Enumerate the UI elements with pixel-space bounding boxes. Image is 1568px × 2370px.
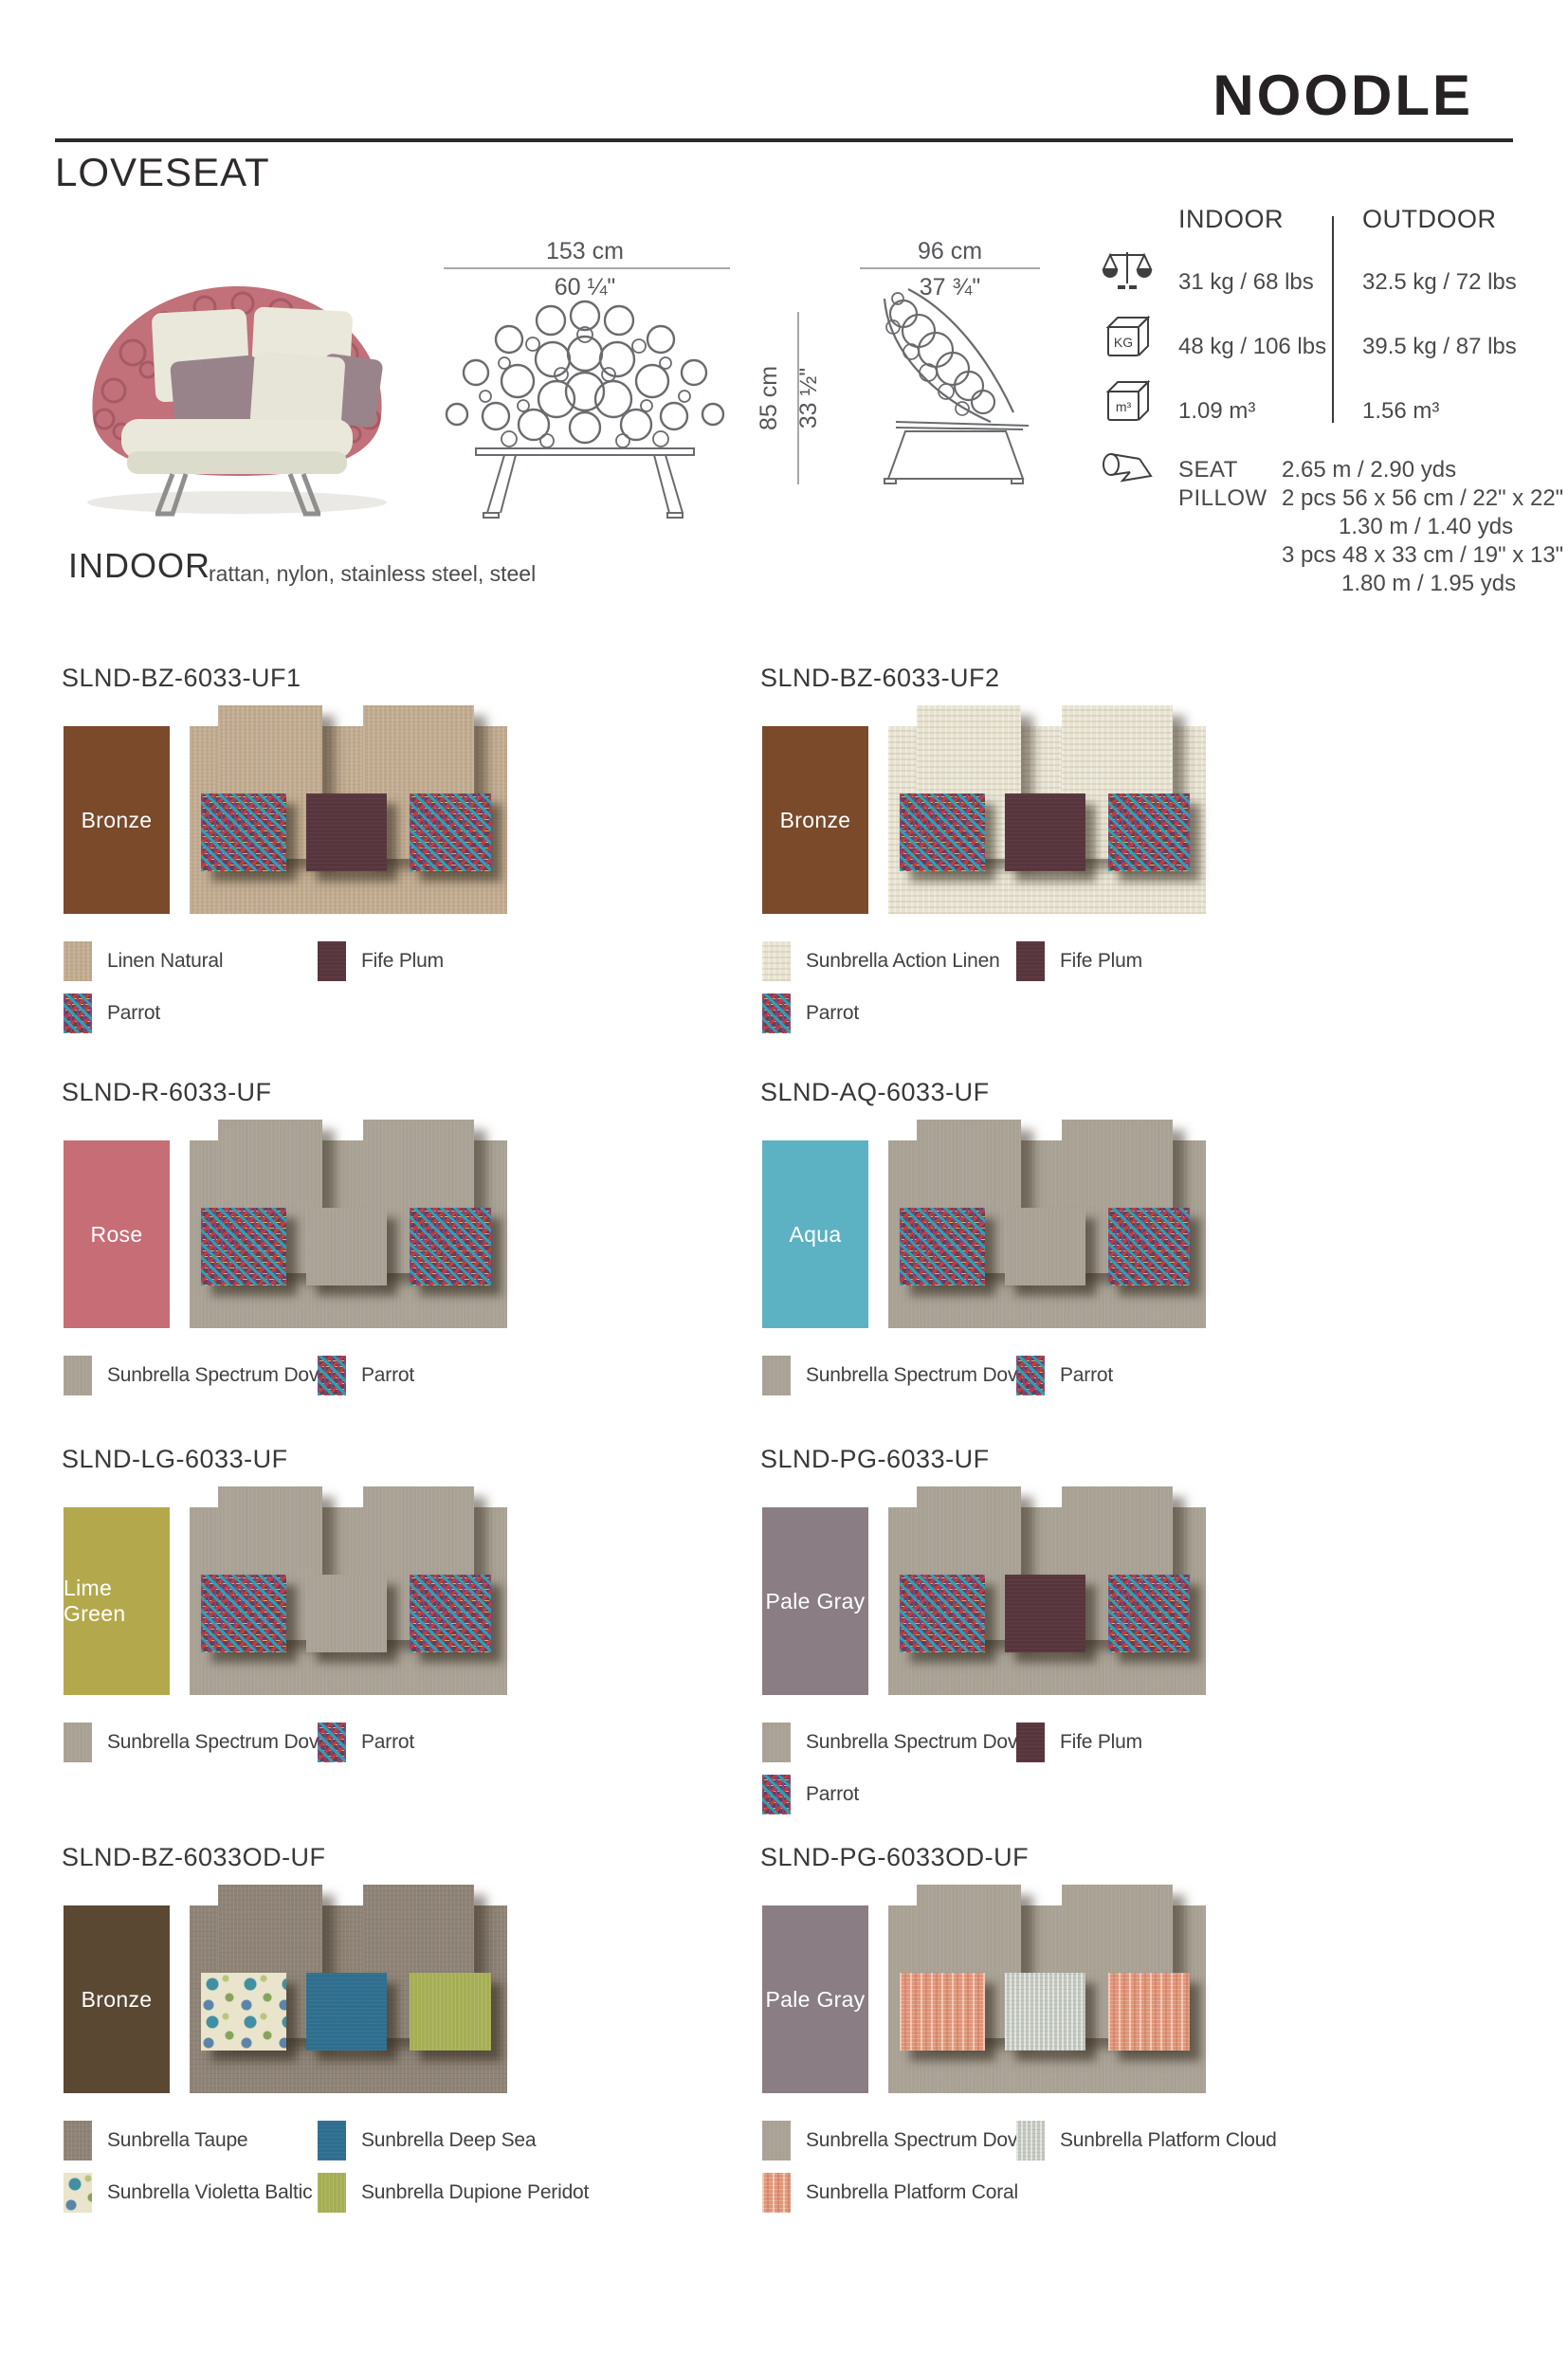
fabric-label: Sunbrella Platform Cloud (1060, 2129, 1277, 2152)
width-in-label: 60 ¼" (555, 274, 615, 301)
pillow-swatch (900, 793, 985, 871)
legend-item: Parrot (318, 1723, 414, 1762)
fabric-roll-icon (1098, 449, 1155, 491)
frame-color-name: Lime Green (64, 1576, 170, 1627)
carton-weight-indoor: 48 kg / 106 lbs (1178, 334, 1326, 360)
width-cm-label: 153 cm (546, 238, 624, 264)
frame-color-swatch: Pale Gray (762, 1507, 868, 1695)
spec-column-divider (1332, 216, 1334, 423)
frame-color-name: Aqua (790, 1222, 842, 1248)
frame-color-name: Bronze (82, 1987, 153, 2013)
variant-sku: SLND-AQ-6033-UF (760, 1078, 990, 1107)
fabric-label: Parrot (806, 1783, 859, 1806)
frame-color-name: Rose (91, 1222, 143, 1248)
pillow-swatch (1005, 793, 1085, 871)
fabric-swatch (64, 2173, 92, 2213)
front-dimension-drawing: 153 cm 60 ¼" (417, 230, 744, 526)
legend-item: Sunbrella Spectrum Dove (64, 1356, 330, 1395)
frame-color-name: Bronze (82, 808, 153, 833)
fabric-label: Fife Plum (1060, 950, 1142, 973)
frame-color-swatch: Bronze (64, 726, 170, 914)
volume-outdoor: 1.56 m³ (1362, 398, 1439, 425)
fabric-collage (190, 1507, 507, 1695)
pillow-swatch (306, 793, 387, 871)
variant-sku: SLND-PG-6033OD-UF (760, 1843, 1029, 1872)
legend-item: Sunbrella Dupione Peridot (318, 2173, 589, 2213)
fabric-swatch (64, 2121, 92, 2160)
variant-sku: SLND-BZ-6033-UF1 (62, 664, 301, 693)
pillow-swatch (1108, 1973, 1190, 2051)
product-type-title: LOVESEAT (55, 150, 270, 195)
svg-text:m³: m³ (1116, 399, 1132, 414)
fabric-swatch (1016, 1723, 1045, 1762)
fabric-collage (888, 726, 1206, 914)
depth-in-label: 37 ¾" (920, 274, 980, 301)
fabric-swatch (762, 1723, 791, 1762)
fabric-label: Sunbrella Platform Coral (806, 2181, 1018, 2204)
fabric-label: Sunbrella Spectrum Dove (806, 1364, 1029, 1387)
kg-cube-icon: KG (1105, 315, 1153, 360)
product-variant: SLND-AQ-6033-UF Aqua Sunbrella Spectrum … (760, 1078, 1462, 1476)
legend-item: Sunbrella Taupe (64, 2121, 247, 2160)
fabric-label: Sunbrella Spectrum Dove (107, 1731, 330, 1754)
product-variant: SLND-R-6033-UF Rose Sunbrella Spectrum D… (62, 1078, 763, 1476)
fabric-collage (888, 1507, 1206, 1695)
title-rule (55, 138, 1513, 142)
legend-item: Parrot (762, 1775, 859, 1814)
legend-item: Fife Plum (1016, 941, 1142, 981)
pillow-swatch (1108, 1208, 1190, 1285)
pillow-swatch (410, 1973, 491, 2051)
fabric-swatch (318, 1723, 346, 1762)
variant-sku: SLND-R-6033-UF (62, 1078, 272, 1107)
weight-indoor: 31 kg / 68 lbs (1178, 269, 1314, 296)
legend-item: Fife Plum (318, 941, 444, 981)
legend-item: Fife Plum (1016, 1723, 1142, 1762)
pillow-swatch (900, 1208, 985, 1285)
fabric-swatch (318, 1356, 346, 1395)
category-label: INDOOR (68, 546, 210, 586)
frame-color-name: Pale Gray (766, 1589, 866, 1614)
fabric-label: Sunbrella Deep Sea (361, 2129, 536, 2152)
legend-item: Sunbrella Spectrum Dove (762, 1356, 1029, 1395)
fabric-label: Fife Plum (361, 950, 444, 973)
fabric-label: Parrot (806, 1002, 859, 1025)
pillow-yardage-line4: 1.80 m / 1.95 yds (1341, 571, 1516, 597)
materials-list: rattan, nylon, stainless steel, steel (209, 561, 536, 587)
variant-sku: SLND-BZ-6033-UF2 (760, 664, 1000, 693)
pillow-swatch (306, 1973, 387, 2051)
product-variant: SLND-BZ-6033OD-UF Bronze Sunbrella Taupe… (62, 1843, 763, 2241)
frame-color-swatch: Aqua (762, 1140, 868, 1328)
product-photo (66, 237, 408, 521)
legend-item: Sunbrella Platform Cloud (1016, 2121, 1277, 2160)
fabric-swatch (318, 941, 346, 981)
pillow-yardage-line1: 2 pcs 56 x 56 cm / 22" x 22" (1282, 485, 1563, 512)
variant-sku: SLND-PG-6033-UF (760, 1445, 990, 1474)
pillow-swatch (306, 1575, 387, 1652)
height-cm-label: 85 cm (756, 366, 782, 430)
fabric-collage (190, 1140, 507, 1328)
frame-color-swatch: Pale Gray (762, 1905, 868, 2093)
pillow-swatch (1005, 1575, 1085, 1652)
product-variant: SLND-BZ-6033-UF1 Bronze Linen Natural Fi… (62, 664, 763, 1062)
product-variant: SLND-BZ-6033-UF2 Bronze Sunbrella Action… (760, 664, 1462, 1062)
fabric-label: Sunbrella Violetta Baltic (107, 2181, 312, 2204)
fabric-label: Parrot (361, 1731, 414, 1754)
fabric-swatch (64, 994, 92, 1033)
fabric-swatch (762, 2121, 791, 2160)
weight-outdoor: 32.5 kg / 72 lbs (1362, 269, 1517, 296)
frame-color-name: Bronze (780, 808, 851, 833)
fabric-label: Parrot (1060, 1364, 1113, 1387)
legend-item: Parrot (1016, 1356, 1113, 1395)
fabric-swatch (64, 1723, 92, 1762)
fabric-label: Sunbrella Action Linen (806, 950, 1000, 973)
legend-item: Sunbrella Spectrum Dove (762, 1723, 1029, 1762)
legend-item: Sunbrella Spectrum Dove (762, 2121, 1029, 2160)
product-variant: SLND-PG-6033OD-UF Pale Gray Sunbrella Sp… (760, 1843, 1462, 2241)
fabric-swatch (762, 941, 791, 981)
fabric-swatch (762, 1775, 791, 1814)
fabric-label: Sunbrella Spectrum Dove (806, 1731, 1029, 1754)
fabric-label: Sunbrella Spectrum Dove (806, 2129, 1029, 2152)
seat-yardage-value: 2.65 m / 2.90 yds (1282, 457, 1456, 483)
fabric-label: Sunbrella Taupe (107, 2129, 247, 2152)
pillow-swatch (201, 1208, 286, 1285)
fabric-swatch (762, 1356, 791, 1395)
fabric-label: Linen Natural (107, 950, 223, 973)
pillow-swatch (900, 1575, 985, 1652)
legend-item: Sunbrella Platform Coral (762, 2173, 1018, 2213)
depth-cm-label: 96 cm (918, 238, 982, 264)
pillow-swatch (410, 793, 491, 871)
fabric-swatch (1016, 1356, 1045, 1395)
fabric-swatch (1016, 2121, 1045, 2160)
legend-item: Parrot (64, 994, 160, 1033)
fabric-swatch (1016, 941, 1045, 981)
variant-sku: SLND-LG-6033-UF (62, 1445, 288, 1474)
pillow-swatch (201, 1575, 286, 1652)
fabric-swatch (64, 941, 92, 981)
fabric-collage (888, 1140, 1206, 1328)
pillow-swatch (1108, 1575, 1190, 1652)
collection-title: NOODLE (1212, 63, 1473, 128)
spec-col-outdoor: OUTDOOR (1362, 205, 1497, 234)
seat-yardage-label: SEAT (1178, 457, 1238, 483)
pillow-swatch (410, 1575, 491, 1652)
svg-text:KG: KG (1114, 335, 1133, 350)
pillow-yardage-label: PILLOW (1178, 485, 1267, 512)
fabric-label: Fife Plum (1060, 1731, 1142, 1754)
variant-sku: SLND-BZ-6033OD-UF (62, 1843, 326, 1872)
pillow-swatch (1005, 1973, 1085, 2051)
fabric-label: Parrot (107, 1002, 160, 1025)
fabric-swatch (762, 2173, 791, 2213)
fabric-swatch (318, 2173, 346, 2213)
product-variant: SLND-LG-6033-UF Lime Green Sunbrella Spe… (62, 1445, 763, 1843)
pillow-yardage-line3: 3 pcs 48 x 33 cm / 19" x 13" (1282, 542, 1563, 569)
fabric-swatch (318, 2121, 346, 2160)
pillow-swatch (201, 1973, 286, 2051)
frame-color-swatch: Rose (64, 1140, 170, 1328)
volume-indoor: 1.09 m³ (1178, 398, 1255, 425)
fabric-swatch (762, 994, 791, 1033)
legend-item: Parrot (318, 1356, 414, 1395)
scale-icon (1102, 248, 1153, 292)
pillow-yardage-line2: 1.30 m / 1.40 yds (1339, 514, 1513, 540)
legend-item: Sunbrella Spectrum Dove (64, 1723, 330, 1762)
pillow-swatch (201, 793, 286, 871)
pillow-swatch (410, 1208, 491, 1285)
pillow-swatch (1108, 793, 1190, 871)
frame-color-swatch: Bronze (762, 726, 868, 914)
legend-item: Linen Natural (64, 941, 223, 981)
frame-color-name: Pale Gray (766, 1987, 866, 2013)
frame-color-swatch: Bronze (64, 1905, 170, 2093)
pillow-swatch (1005, 1208, 1085, 1285)
spec-col-indoor: INDOOR (1178, 205, 1284, 234)
product-variant: SLND-PG-6033-UF Pale Gray Sunbrella Spec… (760, 1445, 1462, 1843)
carton-weight-outdoor: 39.5 kg / 87 lbs (1362, 334, 1517, 360)
pillow-swatch (306, 1208, 387, 1285)
fabric-label: Sunbrella Dupione Peridot (361, 2181, 589, 2204)
side-dimension-drawing: 96 cm 37 ¾" 85 cm 33 ½" (754, 230, 1067, 526)
fabric-swatch (64, 1356, 92, 1395)
fabric-label: Parrot (361, 1364, 414, 1387)
fabric-collage (190, 726, 507, 914)
legend-item: Sunbrella Violetta Baltic (64, 2173, 312, 2213)
fabric-label: Sunbrella Spectrum Dove (107, 1364, 330, 1387)
spec-sheet-page: NOODLE LOVESEAT 153 cm 60 ¼" (0, 0, 1568, 2370)
legend-item: Sunbrella Action Linen (762, 941, 1000, 981)
legend-item: Sunbrella Deep Sea (318, 2121, 536, 2160)
frame-color-swatch: Lime Green (64, 1507, 170, 1695)
legend-item: Parrot (762, 994, 859, 1033)
m3-cube-icon: m³ (1105, 379, 1153, 425)
fabric-collage (190, 1905, 507, 2093)
height-in-label: 33 ½" (795, 368, 822, 428)
pillow-swatch (900, 1973, 985, 2051)
fabric-collage (888, 1905, 1206, 2093)
